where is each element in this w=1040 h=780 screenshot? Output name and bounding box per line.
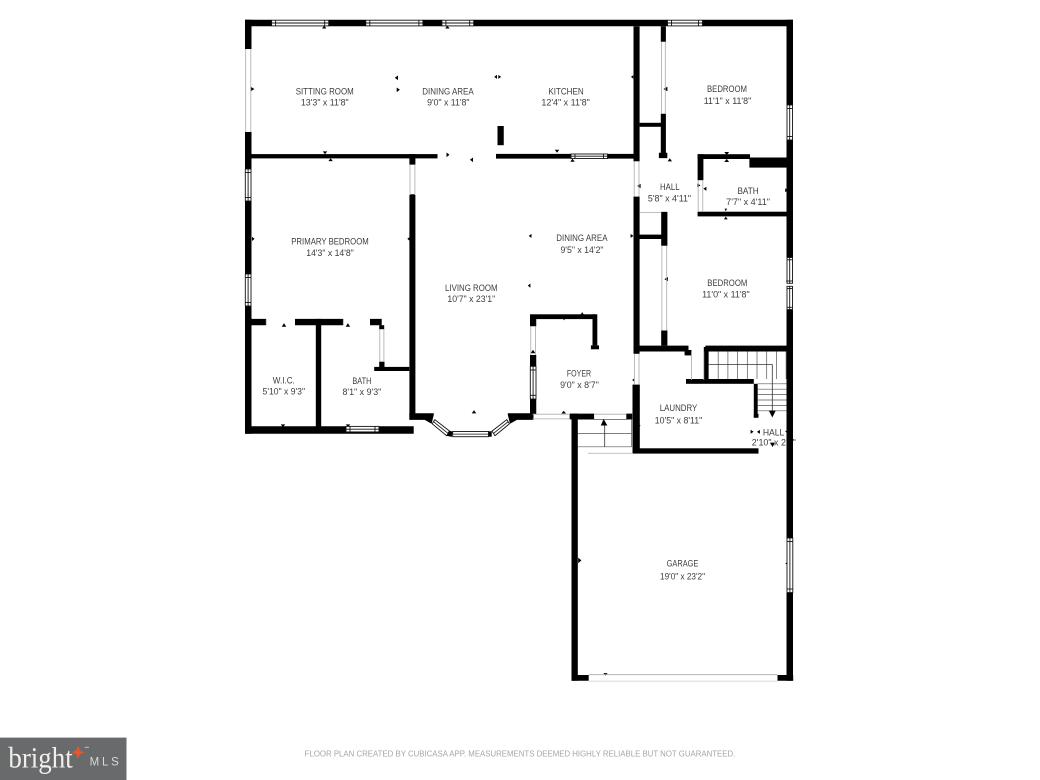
- svg-text:BATH: BATH: [352, 376, 371, 386]
- svg-text:GARAGE: GARAGE: [667, 559, 699, 569]
- svg-text:LAUNDRY: LAUNDRY: [660, 403, 698, 413]
- svg-text:12'4" x 11'8": 12'4" x 11'8": [541, 97, 590, 107]
- svg-text:5'8" x 4'11": 5'8" x 4'11": [648, 193, 691, 203]
- svg-text:bright: bright: [8, 742, 73, 775]
- svg-text:19'0" x 23'2": 19'0" x 23'2": [660, 572, 705, 582]
- svg-text:9'0" x 8'7": 9'0" x 8'7": [560, 380, 599, 390]
- svg-text:HALL: HALL: [763, 427, 785, 437]
- svg-text:DINING AREA: DINING AREA: [556, 233, 607, 243]
- svg-text:FLOOR PLAN CREATED BY CUBICASA: FLOOR PLAN CREATED BY CUBICASA APP. MEAS…: [305, 750, 736, 759]
- svg-text:DINING AREA: DINING AREA: [422, 86, 473, 96]
- svg-text:KITCHEN: KITCHEN: [548, 86, 583, 96]
- svg-text:5'10" x 9'3": 5'10" x 9'3": [263, 387, 306, 397]
- svg-text:13'3" x 11'8": 13'3" x 11'8": [301, 97, 349, 107]
- svg-text:10'5" x 8'11": 10'5" x 8'11": [655, 415, 703, 425]
- svg-text:7'7" x 4'11": 7'7" x 4'11": [726, 197, 770, 207]
- svg-text:FOYER: FOYER: [567, 369, 592, 379]
- svg-text:HALL: HALL: [660, 182, 680, 192]
- svg-text:9'0" x 11'8": 9'0" x 11'8": [427, 97, 469, 107]
- svg-text:9'5" x 14'2": 9'5" x 14'2": [560, 245, 603, 255]
- svg-text:14'3" x 14'8": 14'3" x 14'8": [306, 248, 354, 258]
- svg-text:W.I.C.: W.I.C.: [273, 375, 295, 385]
- svg-text:10'7" x 23'1": 10'7" x 23'1": [447, 294, 495, 304]
- svg-text:PRIMARY BEDROOM: PRIMARY BEDROOM: [291, 236, 369, 246]
- svg-text:BEDROOM: BEDROOM: [707, 84, 747, 94]
- svg-text:BATH: BATH: [737, 186, 758, 196]
- svg-text:11'1" x 11'8": 11'1" x 11'8": [704, 96, 752, 106]
- svg-text:8'1" x 9'3": 8'1" x 9'3": [343, 387, 382, 397]
- svg-text:SITTING ROOM: SITTING ROOM: [296, 86, 354, 96]
- svg-text:MLS: MLS: [90, 756, 120, 768]
- svg-text:11'0" x 11'8": 11'0" x 11'8": [702, 290, 750, 300]
- svg-text:BEDROOM: BEDROOM: [707, 278, 747, 288]
- svg-text:LIVING ROOM: LIVING ROOM: [445, 283, 498, 293]
